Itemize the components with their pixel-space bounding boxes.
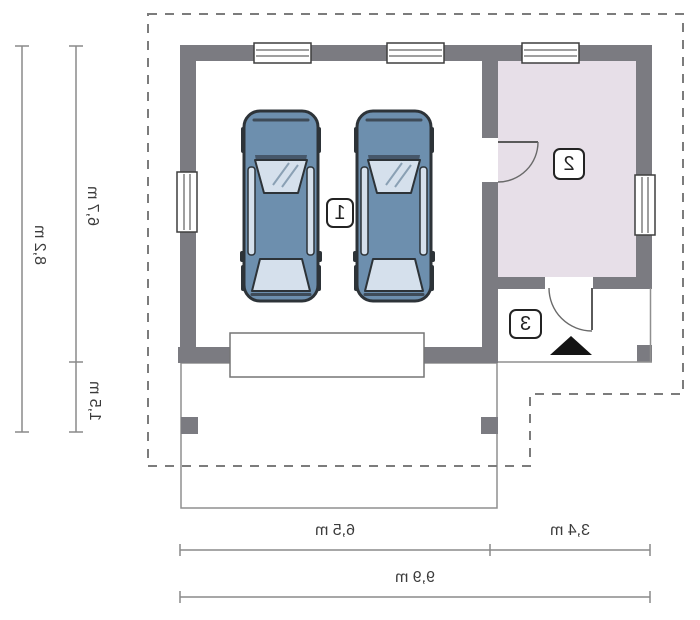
dim-label-overall-depth: 8,2 m <box>29 205 49 285</box>
dim-line-overall-width <box>180 591 650 603</box>
room-label-entry: 3 <box>509 309 542 339</box>
entrance-arrow-icon <box>550 336 592 355</box>
wall-side-annex <box>636 45 652 288</box>
wall-partition-upper <box>482 61 498 138</box>
window-annex-side <box>635 175 655 235</box>
driveway-post-a <box>481 417 498 434</box>
dim-label-annex-width: 3,4 m <box>530 521 610 541</box>
room-label-storage: 2 <box>553 148 585 180</box>
dim-line-overall-depth <box>15 46 29 432</box>
driveway-post-b <box>181 417 198 434</box>
car-top-view-1 <box>240 111 322 301</box>
wall-room2-bottom-b <box>593 277 652 289</box>
window-top-1 <box>522 43 579 63</box>
dim-label-overall-width: 9,9 m <box>375 568 455 588</box>
dim-label-canopy-depth: 1,5 m <box>84 361 104 441</box>
floor-plan-stage-mirrored: 1 2 3 8,2 m 6,7 m 1,5 m 6,5 m 3,4 m 9,9 … <box>0 0 700 620</box>
dim-label-garage-width: 6,5 m <box>295 521 375 541</box>
dim-line-width-split <box>180 544 650 556</box>
door-storage-entry-swing <box>549 288 592 331</box>
wall-room2-bottom-a <box>498 277 545 289</box>
room-label-garage: 1 <box>326 198 354 228</box>
window-top-3 <box>254 43 311 63</box>
dim-line-depth-split <box>69 46 83 432</box>
wall-partition-lower <box>482 182 498 363</box>
car-top-view-2 <box>353 111 435 301</box>
window-garage-side <box>177 172 197 232</box>
wall-garage-front-a <box>178 347 230 363</box>
garage-door <box>230 333 424 377</box>
dim-label-building-depth: 6,7 m <box>82 166 102 246</box>
wall-garage-front-b <box>424 347 498 363</box>
floor-plan-viewport: 1 2 3 8,2 m 6,7 m 1,5 m 6,5 m 3,4 m 9,9 … <box>0 0 700 620</box>
window-top-2 <box>387 43 444 63</box>
driveway <box>181 363 497 508</box>
